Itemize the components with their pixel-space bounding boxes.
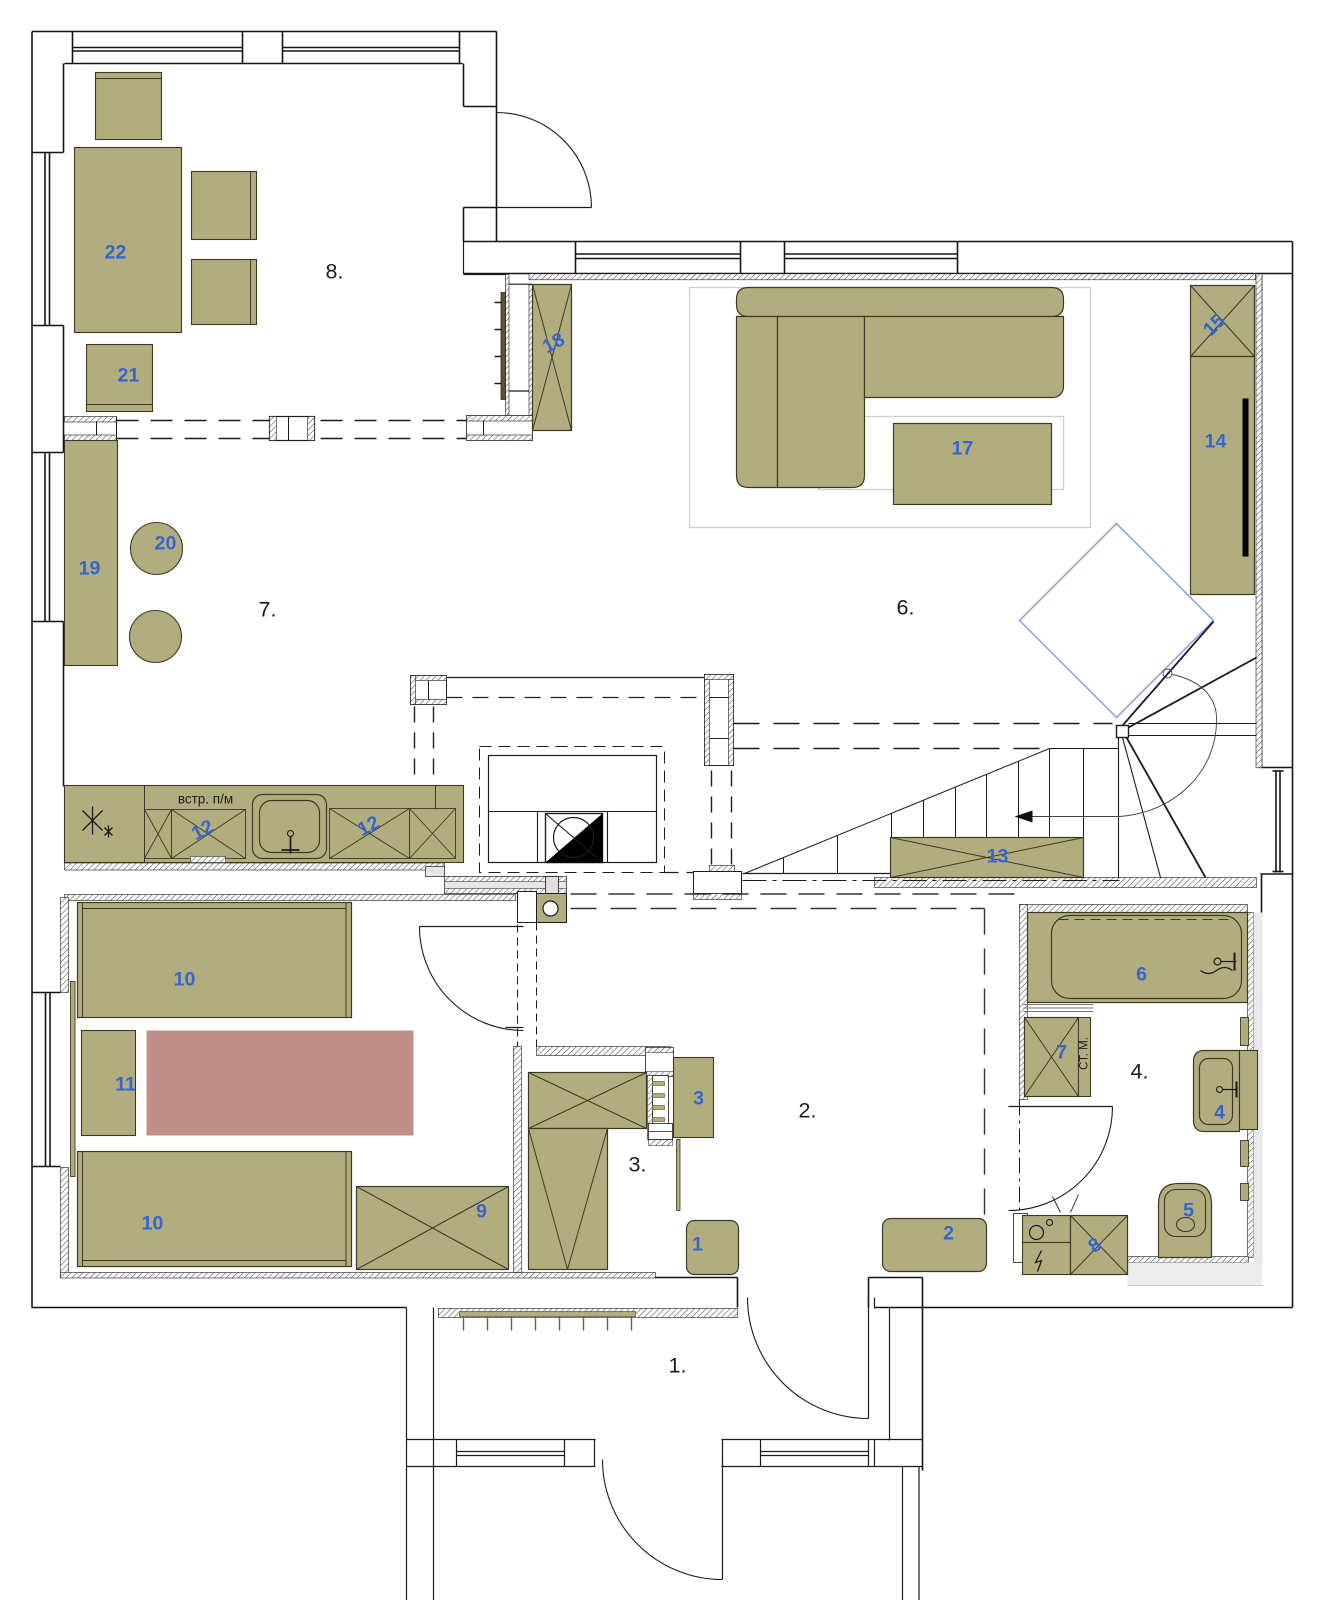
svg-text:2.: 2.: [799, 1099, 817, 1123]
svg-text:22: 22: [105, 242, 127, 264]
svg-text:8.: 8.: [326, 260, 344, 284]
svg-text:4.: 4.: [1131, 1060, 1149, 1084]
svg-text:9: 9: [476, 1201, 487, 1223]
svg-text:10: 10: [142, 1213, 164, 1235]
svg-text:6.: 6.: [897, 596, 915, 620]
svg-text:3.: 3.: [629, 1153, 647, 1177]
svg-text:20: 20: [155, 533, 177, 555]
svg-text:4: 4: [1214, 1102, 1225, 1124]
svg-text:7.: 7.: [259, 598, 277, 622]
svg-text:13: 13: [987, 846, 1009, 868]
svg-text:встр. п/м: встр. п/м: [178, 792, 233, 807]
svg-text:11: 11: [115, 1074, 136, 1096]
svg-text:7: 7: [1056, 1042, 1067, 1064]
svg-text:СТ. М.: СТ. М.: [1079, 1037, 1091, 1070]
svg-text:1: 1: [692, 1234, 703, 1256]
svg-text:21: 21: [118, 365, 140, 387]
svg-text:19: 19: [79, 558, 101, 580]
svg-text:6: 6: [1136, 964, 1147, 986]
svg-text:2: 2: [943, 1223, 954, 1245]
svg-text:10: 10: [174, 969, 196, 991]
svg-text:3: 3: [693, 1088, 704, 1110]
svg-text:5: 5: [1183, 1200, 1194, 1222]
svg-text:14: 14: [1205, 431, 1227, 453]
svg-text:17: 17: [952, 438, 974, 460]
svg-text:1.: 1.: [669, 1354, 687, 1378]
